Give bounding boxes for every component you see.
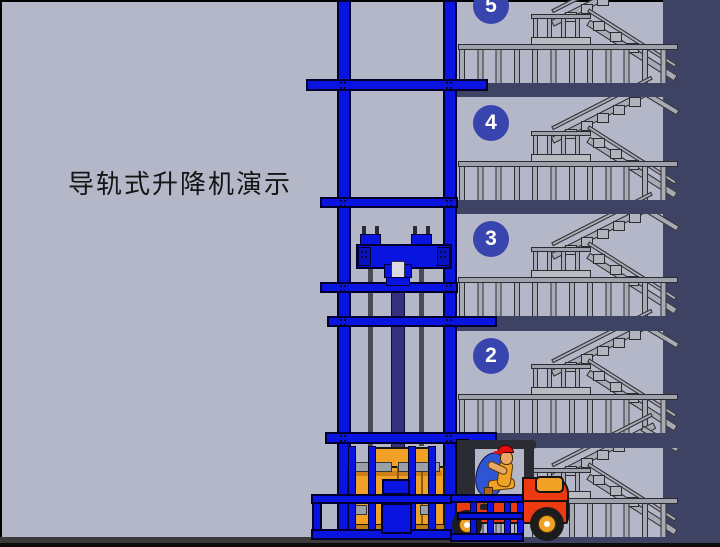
cylinder-base-column xyxy=(381,503,412,534)
bolt-group xyxy=(361,251,363,253)
stair-step xyxy=(593,371,605,381)
bolt-group xyxy=(340,200,342,202)
bolt-group xyxy=(446,435,448,437)
bolt-group xyxy=(446,200,448,202)
stair-step xyxy=(629,213,641,223)
stair-step xyxy=(593,254,605,264)
landing-balusters xyxy=(533,19,589,38)
stair-step xyxy=(597,113,609,123)
stair-step xyxy=(593,21,605,31)
stair-step xyxy=(610,149,622,159)
crossbeam-floor3 xyxy=(327,316,497,327)
floor-number-label: 2 xyxy=(473,338,509,374)
crossbeam-floor4 xyxy=(320,197,458,208)
pallet-gray-piece xyxy=(355,505,367,515)
bolt-group xyxy=(340,82,342,84)
lift-rod-right xyxy=(419,238,424,446)
stair-step xyxy=(613,221,625,231)
platform-fence-post xyxy=(368,446,376,538)
stair-step xyxy=(610,32,622,42)
forklift-hood-tank xyxy=(535,476,564,493)
floor-slab-5 xyxy=(455,83,720,97)
stair-step xyxy=(629,97,641,107)
ground-base-line xyxy=(0,543,720,547)
stairwell-unit: 5 xyxy=(455,0,690,83)
stair-step xyxy=(597,450,609,460)
stair-step xyxy=(597,229,609,239)
dock-fence-mid-rail xyxy=(457,512,524,520)
lift-demo-scene: 导轨式升降机演示 5 4 xyxy=(0,0,720,547)
bolt-group xyxy=(446,285,448,287)
floor-number-badge: 3 xyxy=(473,221,509,257)
platform-fence-post xyxy=(348,446,356,538)
forklift-guard-front-post xyxy=(468,447,475,497)
dock-fence-top-rail xyxy=(450,494,524,503)
stair-step xyxy=(610,265,622,275)
floor-number-label: 3 xyxy=(473,221,509,257)
landing-balusters xyxy=(533,136,589,155)
floor-number-badge: 2 xyxy=(473,338,509,374)
driver-cap-brim xyxy=(494,451,503,454)
crosshead-plate-right xyxy=(437,247,450,266)
stair-step xyxy=(597,346,609,356)
landing-balusters xyxy=(533,252,589,271)
stair-step xyxy=(593,475,605,485)
lift-rod-left xyxy=(368,238,373,446)
stairwell-unit: 4 xyxy=(455,83,690,200)
stairwell-unit: 3 xyxy=(455,199,690,316)
bolt-group xyxy=(340,319,342,321)
bolt-group xyxy=(446,319,448,321)
crossbeam-floor5 xyxy=(306,79,488,91)
stair-step xyxy=(597,0,609,6)
stair-step xyxy=(613,105,625,115)
bolt-group xyxy=(440,251,442,253)
floor-number-badge: 5 xyxy=(473,0,509,24)
dock-fence-bottom-rail xyxy=(450,533,524,542)
stair-step xyxy=(610,486,622,496)
bolt-group xyxy=(446,82,448,84)
stair-step xyxy=(593,138,605,148)
platform-fence-post xyxy=(428,446,436,538)
bolt-group xyxy=(340,285,342,287)
coupling-base xyxy=(386,277,410,286)
floor-number-label: 5 xyxy=(473,0,509,24)
stair-step xyxy=(629,330,641,340)
stair-step xyxy=(613,338,625,348)
floor-slab-4 xyxy=(455,200,720,214)
crosshead-plate-left xyxy=(358,247,371,266)
stairwell-unit: 2 xyxy=(455,316,690,433)
floor-number-label: 4 xyxy=(473,105,509,141)
forklift-rear-wheel-dot xyxy=(544,521,550,527)
landing-balusters xyxy=(533,369,589,388)
bolt-group xyxy=(340,435,342,437)
floor-number-badge: 4 xyxy=(473,105,509,141)
cylinder-foot-block xyxy=(382,479,410,495)
stair-step xyxy=(610,382,622,392)
